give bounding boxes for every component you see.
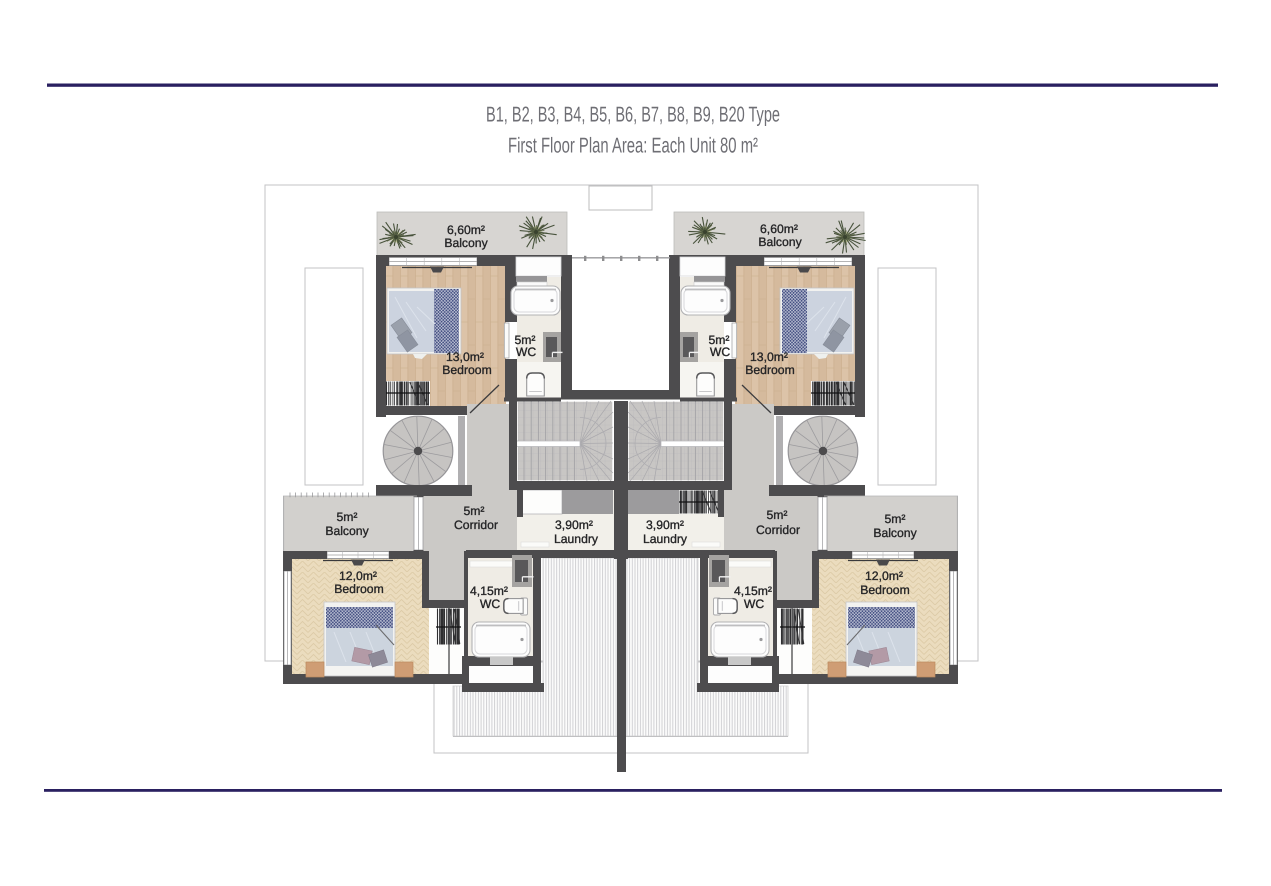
svg-text:12,0m²: 12,0m² [865,569,903,583]
svg-text:5m²: 5m² [767,508,788,522]
svg-text:WC: WC [480,597,501,611]
svg-text:12,0m²: 12,0m² [339,569,377,583]
svg-text:Bedroom: Bedroom [442,363,491,377]
svg-text:Balcony: Balcony [873,526,917,540]
svg-text:5m²: 5m² [337,510,358,524]
svg-text:6,60m²: 6,60m² [447,223,485,237]
svg-text:WC: WC [744,597,765,611]
svg-text:B1, B2, B3, B4, B5, B6, B7, B8: B1, B2, B3, B4, B5, B6, B7, B8, B9, B20 … [486,103,780,127]
svg-text:Bedroom: Bedroom [860,583,909,597]
svg-text:6,60m²: 6,60m² [760,222,798,236]
svg-text:13,0m²: 13,0m² [446,350,484,364]
svg-text:Laundry: Laundry [554,532,599,546]
svg-text:Laundry: Laundry [643,532,688,546]
svg-text:4,15m²: 4,15m² [470,584,508,598]
svg-text:Balcony: Balcony [325,524,369,538]
svg-text:WC: WC [516,345,537,359]
svg-text:WC: WC [710,345,731,359]
svg-text:13,0m²: 13,0m² [750,350,788,364]
svg-text:Corridor: Corridor [454,518,498,532]
svg-text:3,90m²: 3,90m² [646,518,684,532]
svg-text:3,90m²: 3,90m² [555,518,593,532]
svg-text:Balcony: Balcony [758,235,802,249]
svg-text:4,15m²: 4,15m² [734,584,772,598]
svg-text:First Floor Plan Area: Each Un: First Floor Plan Area: Each Unit 80 m² [508,134,758,158]
svg-text:5m²: 5m² [885,512,906,526]
svg-text:Bedroom: Bedroom [334,582,383,596]
svg-text:Balcony: Balcony [444,236,488,250]
svg-text:Corridor: Corridor [756,523,800,537]
svg-text:Bedroom: Bedroom [745,363,794,377]
svg-text:5m²: 5m² [464,504,485,518]
